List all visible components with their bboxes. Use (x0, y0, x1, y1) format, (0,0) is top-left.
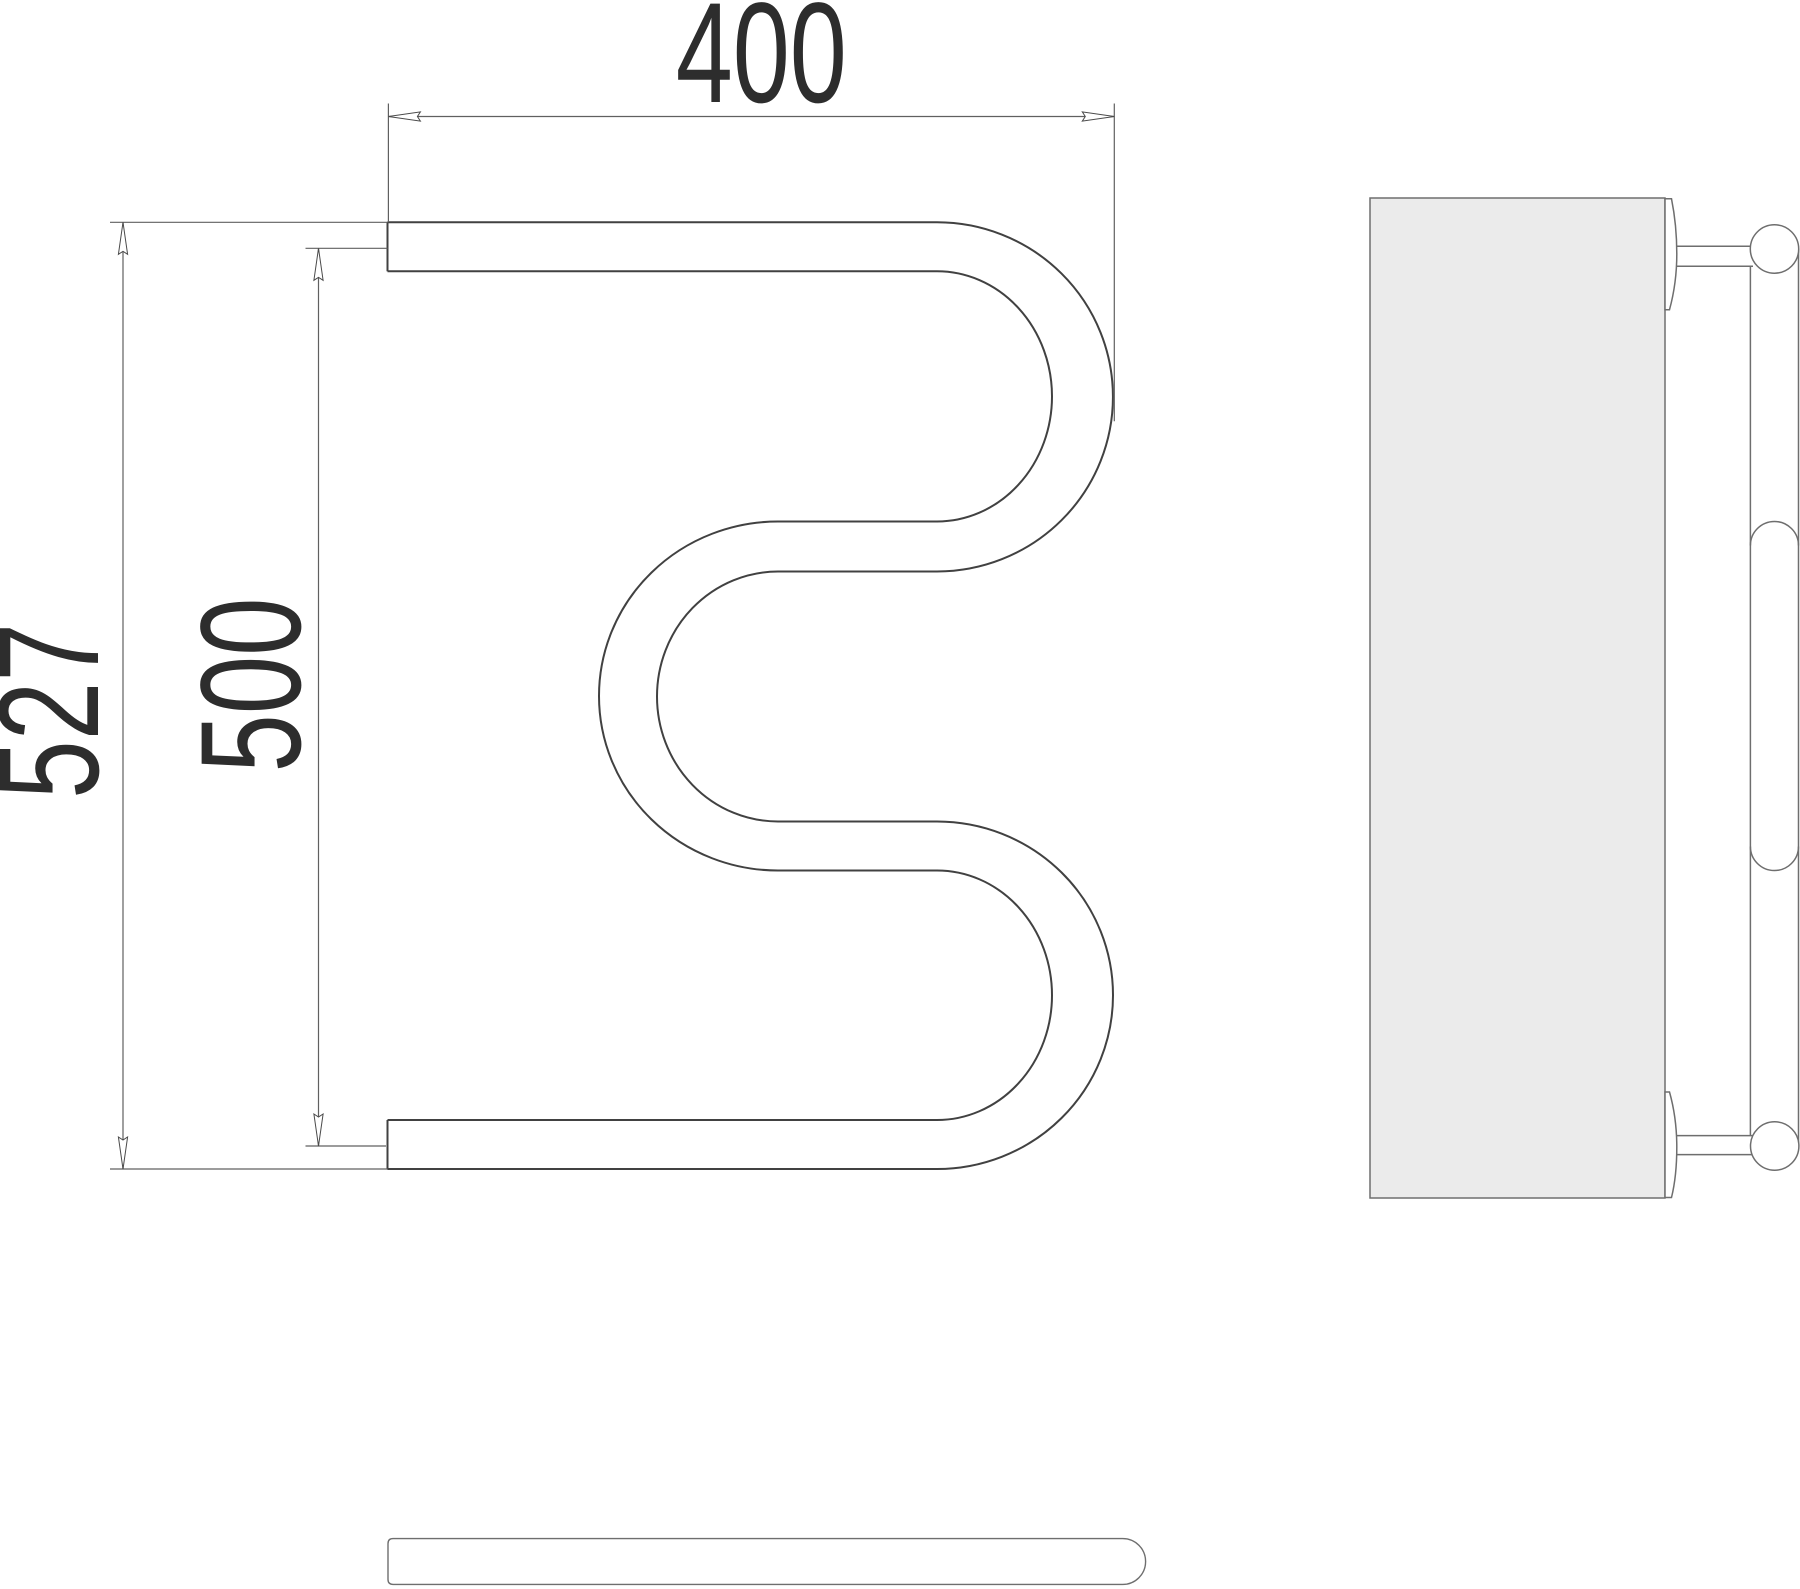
svg-text:527: 527 (0, 623, 129, 799)
svg-text:500: 500 (172, 598, 331, 773)
svg-text:400: 400 (676, 0, 847, 133)
